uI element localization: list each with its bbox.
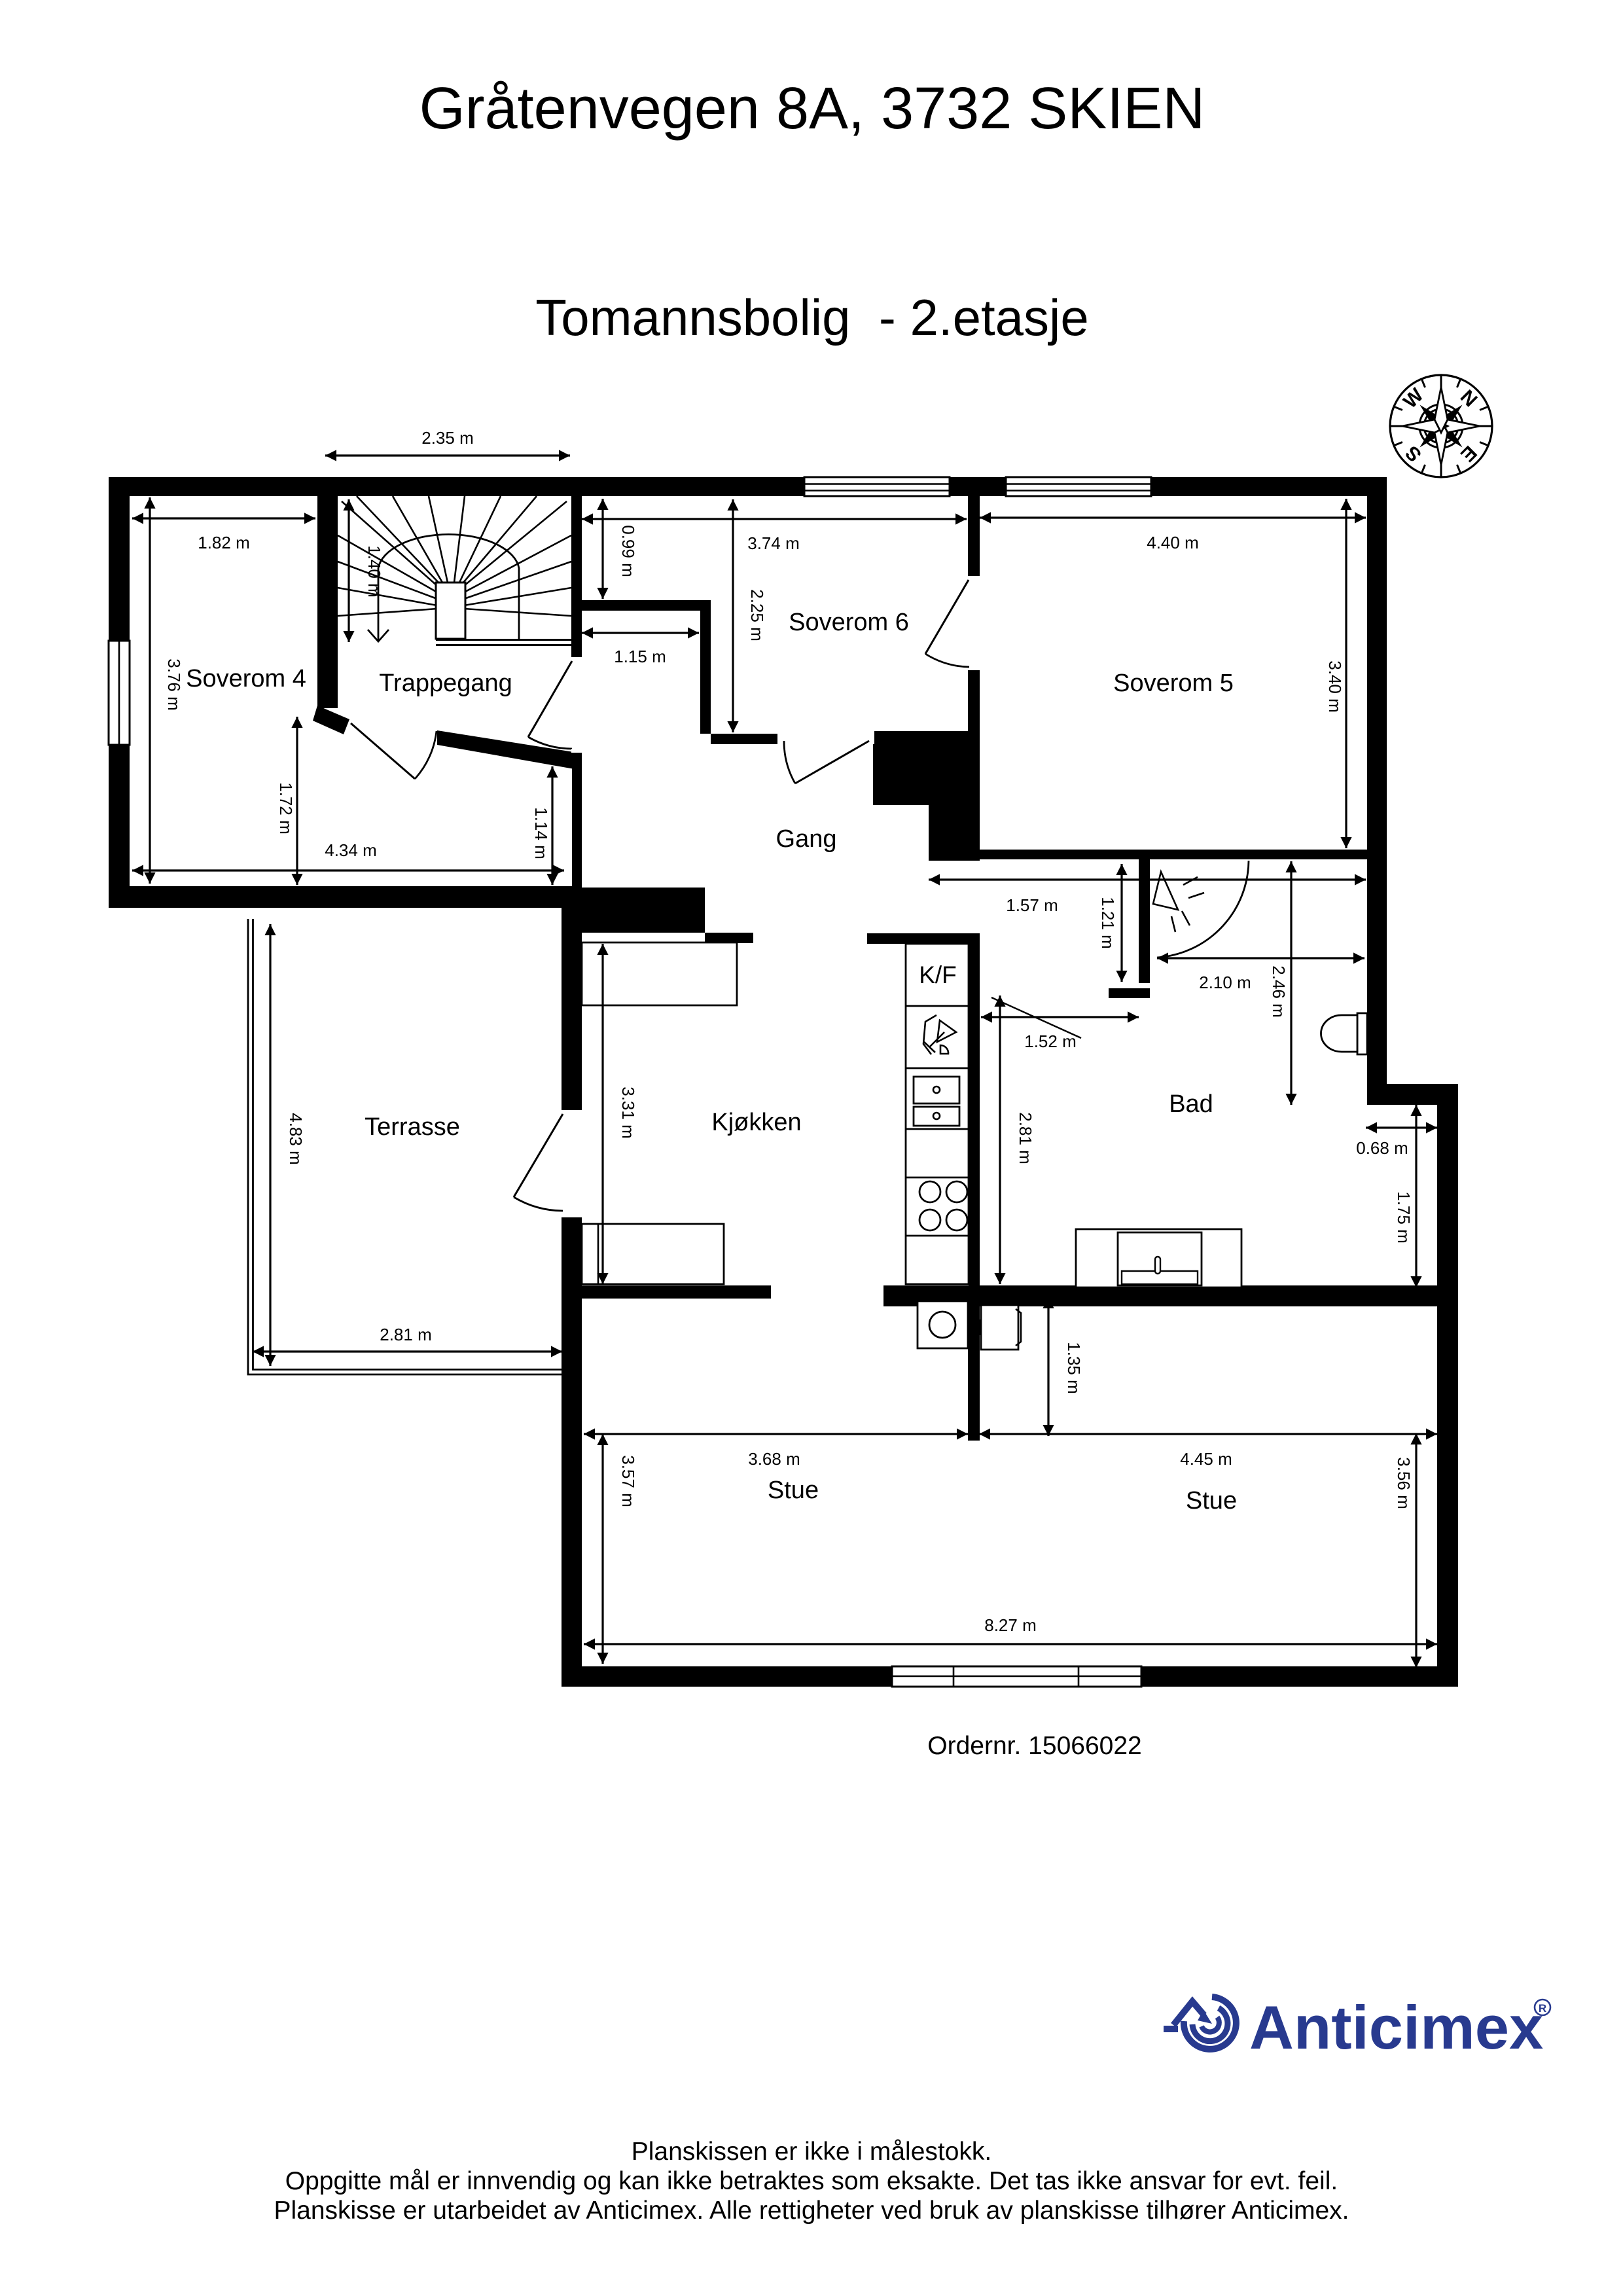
svg-text:Stue: Stue xyxy=(1186,1487,1237,1515)
svg-text:4.83 m: 4.83 m xyxy=(286,1113,306,1165)
svg-text:3.31 m: 3.31 m xyxy=(618,1086,638,1139)
svg-text:Soverom 4: Soverom 4 xyxy=(186,665,306,692)
svg-text:1.40 m: 1.40 m xyxy=(365,545,384,598)
svg-text:1.35 m: 1.35 m xyxy=(1064,1342,1084,1394)
svg-text:4.34 m: 4.34 m xyxy=(325,840,377,860)
svg-text:1.21 m: 1.21 m xyxy=(1098,897,1118,949)
svg-text:Tomannsbolig - 2.etasje: Tomannsbolig - 2.etasje xyxy=(535,289,1088,346)
svg-text:2.81 m: 2.81 m xyxy=(380,1325,432,1344)
svg-text:2.25 m: 2.25 m xyxy=(747,589,767,641)
svg-text:0.68 m: 0.68 m xyxy=(1356,1138,1408,1158)
svg-text:2.81 m: 2.81 m xyxy=(1016,1112,1035,1164)
svg-text:1.72 m: 1.72 m xyxy=(276,782,296,834)
svg-text:1.57 m: 1.57 m xyxy=(1006,895,1058,915)
svg-text:8.27 m: 8.27 m xyxy=(984,1615,1037,1635)
svg-text:Gang: Gang xyxy=(776,825,837,853)
svg-text:K/F: K/F xyxy=(919,961,957,988)
svg-text:Kjøkken: Kjøkken xyxy=(711,1109,801,1136)
svg-text:2.46 m: 2.46 m xyxy=(1269,965,1289,1018)
svg-text:Soverom 6: Soverom 6 xyxy=(789,609,909,636)
svg-text:Bad: Bad xyxy=(1169,1090,1213,1118)
svg-text:1.82 m: 1.82 m xyxy=(198,533,250,552)
svg-text:4.45 m: 4.45 m xyxy=(1180,1449,1232,1469)
svg-text:Soverom 5: Soverom 5 xyxy=(1113,670,1234,697)
svg-text:Gråtenvegen 8A, 3732 SKIEN: Gråtenvegen 8A, 3732 SKIEN xyxy=(419,76,1205,141)
svg-text:Ordernr. 15066022: Ordernr. 15066022 xyxy=(927,1732,1141,1760)
svg-text:3.57 m: 3.57 m xyxy=(618,1455,638,1507)
svg-text:R: R xyxy=(1539,2002,1546,2015)
svg-text:1.14 m: 1.14 m xyxy=(531,807,551,859)
svg-text:Planskisse er utarbeidet av An: Planskisse er utarbeidet av Anticimex. A… xyxy=(274,2197,1349,2225)
svg-text:2.10 m: 2.10 m xyxy=(1199,973,1251,992)
svg-text:Trappegang: Trappegang xyxy=(379,670,512,697)
svg-text:3.76 m: 3.76 m xyxy=(164,658,184,711)
svg-text:Oppgitte mål er innvendig og k: Oppgitte mål er innvendig og kan ikke be… xyxy=(285,2167,1338,2195)
svg-text:3.74 m: 3.74 m xyxy=(747,533,800,553)
svg-text:4.40 m: 4.40 m xyxy=(1147,533,1199,552)
svg-text:3.56 m: 3.56 m xyxy=(1394,1457,1414,1509)
svg-text:Stue: Stue xyxy=(768,1477,819,1504)
svg-text:2.35 m: 2.35 m xyxy=(421,428,474,448)
svg-text:3.40 m: 3.40 m xyxy=(1325,660,1345,713)
svg-text:1.15 m: 1.15 m xyxy=(614,647,666,666)
svg-text:0.99 m: 0.99 m xyxy=(618,525,638,577)
svg-text:Terrasse: Terrasse xyxy=(365,1113,460,1141)
svg-text:Anticimex: Anticimex xyxy=(1249,1993,1543,2062)
svg-text:1.52 m: 1.52 m xyxy=(1024,1031,1077,1051)
svg-text:Planskissen er ikke i målestok: Planskissen er ikke i målestokk. xyxy=(632,2138,992,2166)
svg-text:3.68 m: 3.68 m xyxy=(748,1449,800,1469)
svg-text:1.75 m: 1.75 m xyxy=(1394,1191,1414,1244)
